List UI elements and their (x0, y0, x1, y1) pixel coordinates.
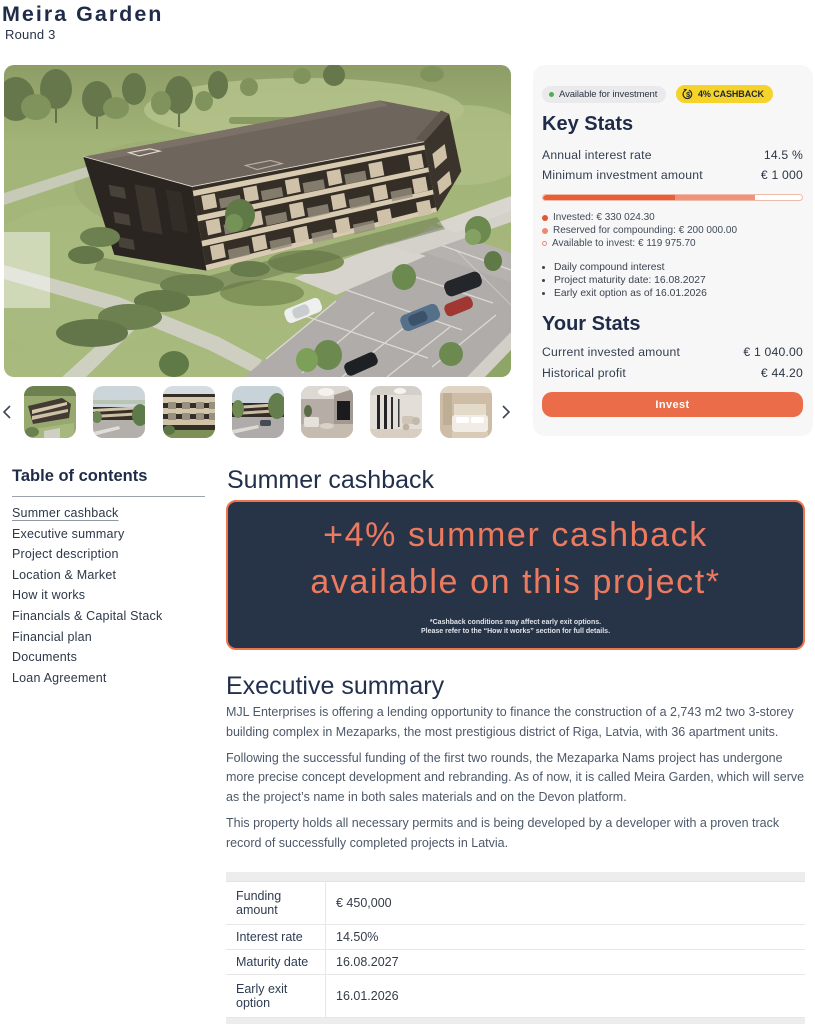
svg-text:$: $ (686, 90, 690, 99)
